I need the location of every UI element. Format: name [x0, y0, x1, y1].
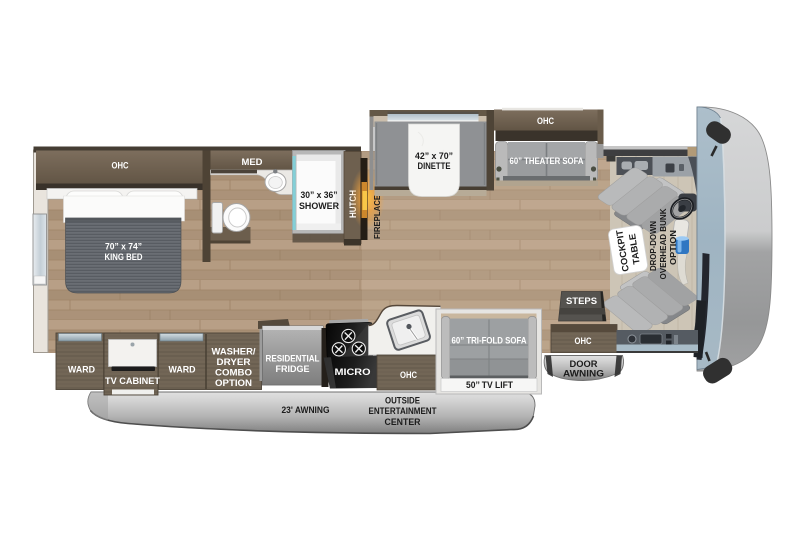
svg-text:WARD: WARD [169, 365, 196, 375]
svg-text:DRYER: DRYER [217, 357, 252, 367]
svg-text:AWNING: AWNING [563, 369, 604, 379]
svg-text:60” TRI-FOLD SOFA: 60” TRI-FOLD SOFA [452, 335, 528, 345]
svg-text:TV CABINET: TV CABINET [105, 376, 161, 386]
svg-text:OHC: OHC [537, 116, 554, 126]
svg-text:30” x 36”: 30” x 36” [301, 190, 338, 200]
svg-text:70” x 74”: 70” x 74” [105, 242, 142, 252]
svg-text:WASHER/: WASHER/ [212, 347, 257, 357]
svg-text:SHOWER: SHOWER [299, 201, 339, 211]
svg-text:OHC: OHC [400, 370, 417, 380]
svg-text:WARD: WARD [68, 365, 95, 375]
svg-text:FRIDGE: FRIDGE [276, 364, 310, 374]
svg-text:RESIDENTIAL: RESIDENTIAL [266, 354, 321, 364]
svg-text:23' AWNING: 23' AWNING [282, 405, 330, 415]
svg-text:KING BED: KING BED [105, 252, 143, 262]
svg-text:CENTER: CENTER [385, 417, 422, 427]
svg-text:OUTSIDE: OUTSIDE [385, 396, 420, 406]
svg-text:50’’ TV LIFT: 50’’ TV LIFT [466, 380, 513, 390]
svg-text:OVERHEAD BUNK: OVERHEAD BUNK [658, 208, 668, 280]
svg-text:STEPS: STEPS [566, 296, 597, 306]
svg-text:FIREPLACE: FIREPLACE [372, 195, 382, 239]
svg-text:OHC: OHC [575, 336, 592, 346]
svg-text:60” THEATER SOFA: 60” THEATER SOFA [510, 156, 585, 166]
svg-text:DOOR: DOOR [570, 359, 598, 369]
svg-text:MICRO: MICRO [335, 367, 371, 377]
svg-text:DROP-DOWN: DROP-DOWN [648, 221, 658, 271]
svg-text:COMBO: COMBO [215, 367, 252, 377]
svg-text:ENTERTAINMENT: ENTERTAINMENT [369, 406, 438, 416]
svg-text:OPTION: OPTION [668, 230, 678, 265]
svg-text:OPTION: OPTION [215, 378, 252, 388]
svg-text:OHC: OHC [112, 161, 129, 171]
svg-text:DINETTE: DINETTE [418, 161, 451, 171]
svg-text:MED: MED [242, 157, 264, 167]
svg-text:42” x 70”: 42” x 70” [415, 151, 453, 161]
